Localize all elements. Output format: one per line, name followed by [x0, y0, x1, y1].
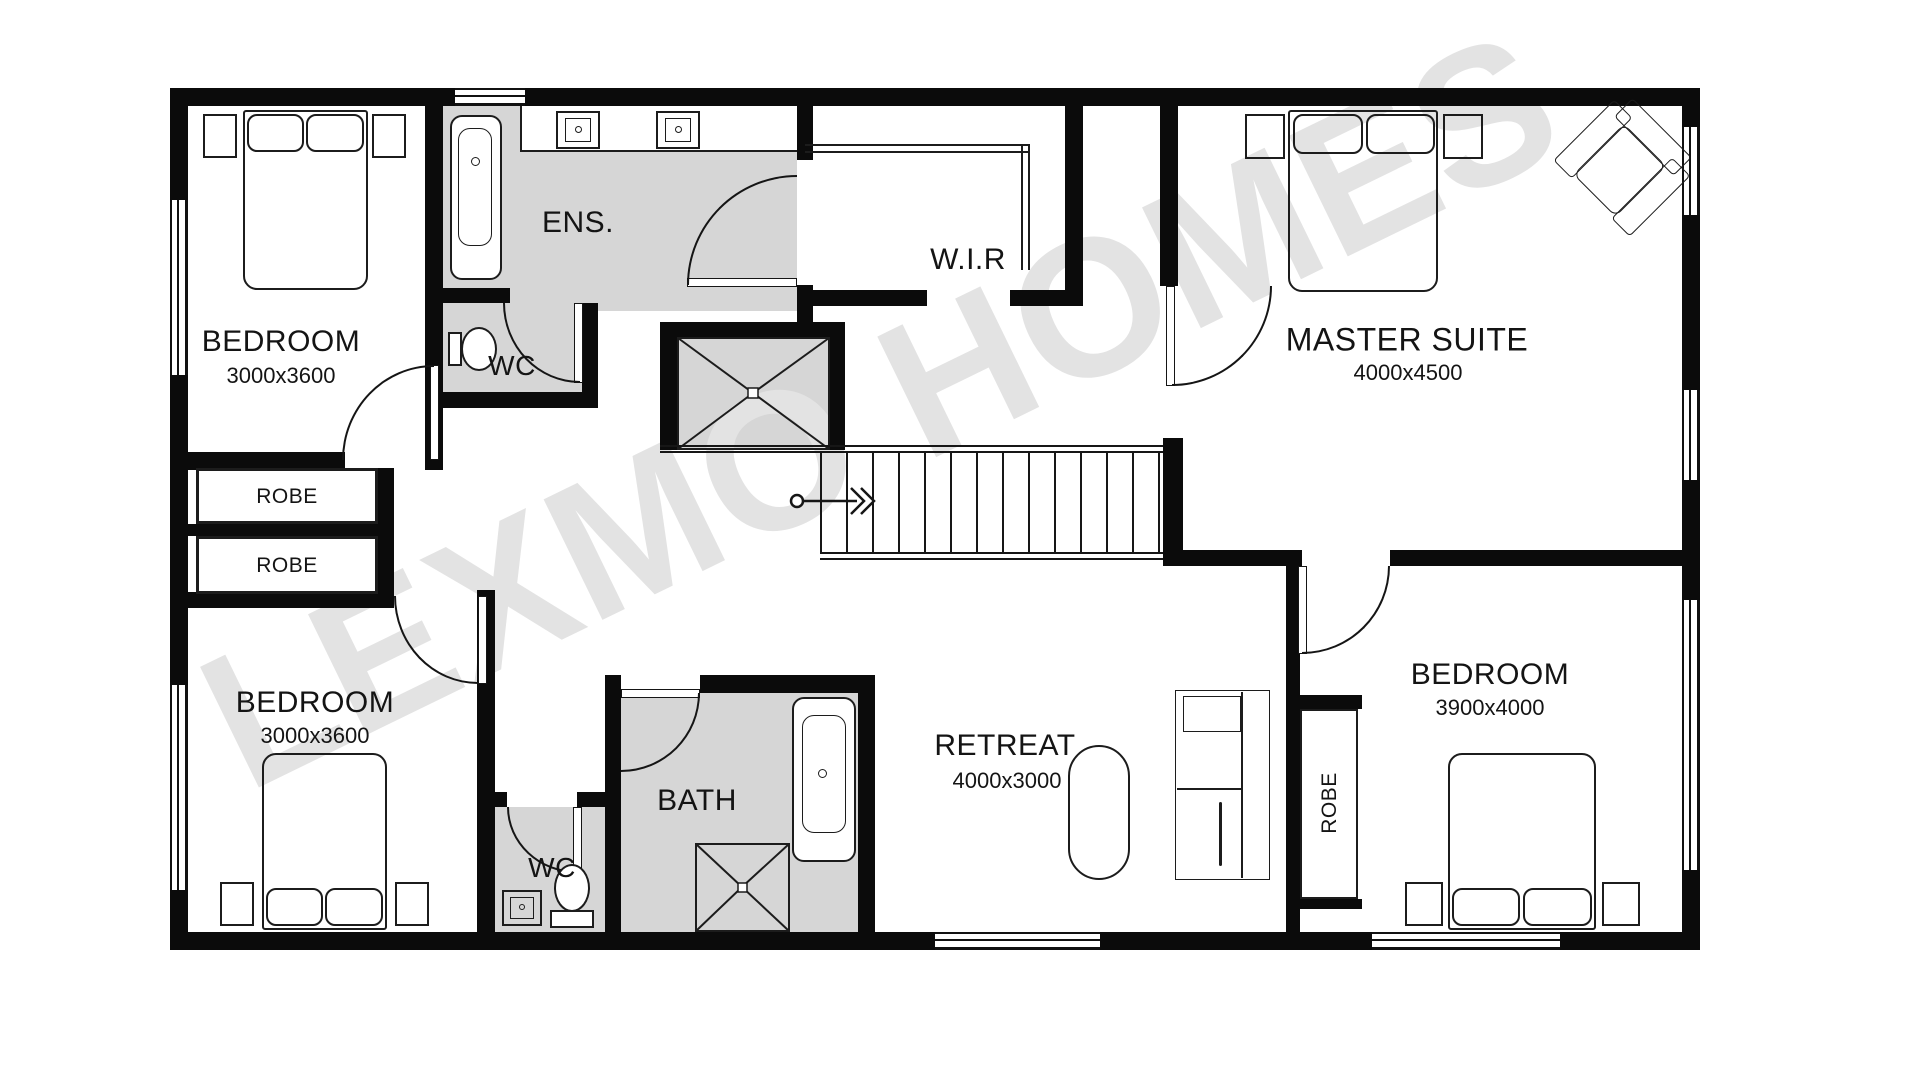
- desk-unit: [1175, 690, 1270, 880]
- floor-plan: LEXMO HOMES R: [0, 0, 1920, 1080]
- sink-icon: [556, 111, 600, 149]
- wall-shower-upper-left: [660, 337, 677, 450]
- wall-master-bottom-a: [1183, 550, 1302, 566]
- shower-icon: [677, 337, 830, 450]
- wall-bath-left: [605, 675, 621, 932]
- side-table: [203, 114, 237, 158]
- wall-bedroom2-top: [188, 592, 394, 608]
- side-table: [395, 882, 429, 926]
- pillow: [325, 888, 383, 926]
- window-top: [455, 88, 525, 106]
- robe3-bottom-bar: [1300, 899, 1362, 909]
- wall-right-c: [1682, 480, 1700, 600]
- wall-master-bottom-b: [1390, 550, 1682, 566]
- master-suite-dims: 4000x4500: [1354, 360, 1463, 386]
- bathtub-icon: [792, 697, 856, 862]
- wall-robe-divider: [188, 524, 394, 536]
- pillow: [1366, 114, 1435, 154]
- stairs-top-edge: [660, 445, 1163, 453]
- wir-shelf-right: [1021, 144, 1030, 270]
- door-leaf-bedroom2: [478, 596, 487, 684]
- wall-left-b: [170, 375, 188, 685]
- side-table: [1443, 114, 1483, 159]
- wall-shower-upper-top: [660, 322, 845, 337]
- wall-bath-right: [858, 675, 875, 932]
- bedroom1-dims: 3000x3600: [227, 363, 336, 389]
- robe3-top-bar: [1300, 695, 1362, 709]
- wall-top-left: [170, 88, 455, 106]
- wall-stair-end: [1163, 438, 1183, 566]
- robe-upper-label: ROBE: [256, 485, 318, 509]
- ensuite-label: ENS.: [542, 206, 614, 240]
- wall-top-main: [525, 88, 1700, 106]
- sink-icon: [502, 890, 542, 926]
- wall-wc-upper-top: [425, 288, 510, 303]
- robe-lower-label: ROBE: [256, 554, 318, 578]
- wall-bottom-b: [1100, 932, 1372, 950]
- retreat-label: RETREAT: [934, 729, 1075, 763]
- side-table: [1602, 882, 1640, 926]
- side-table: [1245, 114, 1285, 159]
- window-bottom-bedroom3: [1372, 932, 1560, 950]
- wall-bath-top: [700, 675, 875, 693]
- sink-icon: [656, 111, 700, 149]
- wall-wc-lower-top-a: [477, 792, 507, 807]
- wir-label: W.I.R: [930, 243, 1006, 277]
- wall-right-b: [1682, 215, 1700, 390]
- oval-chair: [1068, 745, 1130, 880]
- wc-upper-label: WC: [488, 350, 536, 382]
- bathtub-icon: [450, 115, 502, 280]
- pillow: [1523, 888, 1592, 926]
- pillow: [1293, 114, 1363, 154]
- window-left-bedroom2: [170, 685, 188, 890]
- master-suite-label: MASTER SUITE: [1286, 322, 1528, 359]
- window-right-mid: [1682, 390, 1700, 480]
- shower-icon: [695, 843, 790, 932]
- side-table: [220, 882, 254, 926]
- door-arc-bedroom3: [1302, 566, 1390, 654]
- wc-lower-label: WC: [528, 852, 576, 884]
- pillow: [266, 888, 323, 926]
- wall-right-a: [1682, 88, 1700, 127]
- bedroom3-label: BEDROOM: [1411, 658, 1570, 692]
- bedroom2-dims: 3000x3600: [261, 723, 370, 749]
- pillow: [247, 114, 304, 152]
- wall-shower-upper-right: [830, 322, 845, 450]
- bath-label: BATH: [657, 784, 737, 818]
- stairs-direction-arrow-icon: [785, 484, 895, 520]
- stairs-bottom-edge: [820, 552, 1163, 560]
- bedroom2-label: BEDROOM: [236, 686, 395, 720]
- side-table: [372, 114, 406, 158]
- wall-master-west: [1160, 106, 1178, 286]
- wall-wir-bottom-a: [797, 290, 927, 306]
- bedroom3-dims: 3900x4000: [1436, 695, 1545, 721]
- wall-right-d: [1682, 870, 1700, 950]
- window-left-bedroom1: [170, 200, 188, 375]
- armchair-icon: [1548, 90, 1701, 243]
- wall-bottom-c: [1560, 932, 1700, 950]
- window-bottom-retreat: [935, 932, 1100, 950]
- wir-shelf-top: [805, 144, 1030, 153]
- side-table: [1405, 882, 1443, 926]
- wall-left-a: [170, 88, 188, 200]
- window-right-bedroom3: [1682, 600, 1700, 870]
- retreat-dims: 4000x3000: [953, 768, 1062, 794]
- wall-bath-top-corner: [605, 675, 621, 693]
- wall-bottom-a: [170, 932, 935, 950]
- wall-wir-right: [1065, 106, 1083, 306]
- pillow: [1452, 888, 1520, 926]
- bedroom1-label: BEDROOM: [202, 325, 361, 359]
- pillow: [306, 114, 364, 152]
- robe3-label: ROBE: [1318, 772, 1342, 834]
- wall-wc-upper-bottom: [425, 392, 598, 408]
